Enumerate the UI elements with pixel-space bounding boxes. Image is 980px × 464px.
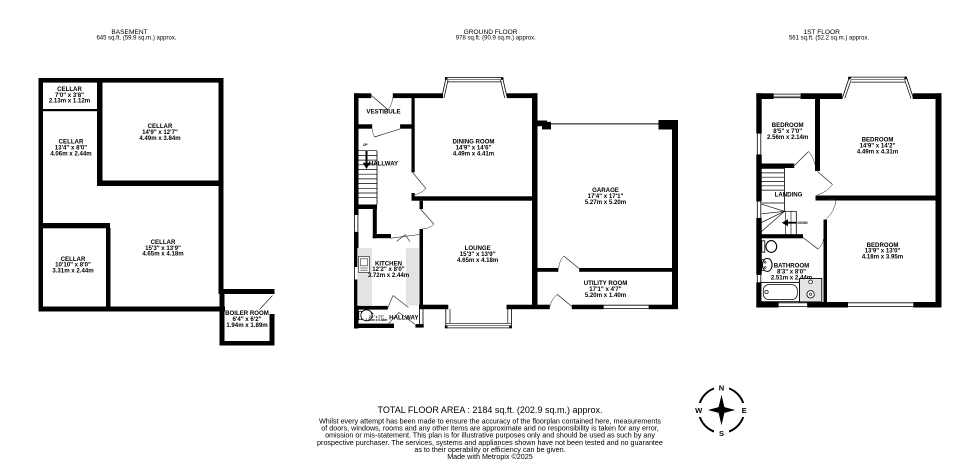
svg-text:VESTIBULE: VESTIBULE [366, 108, 400, 115]
svg-text:978 sq.ft. (90.9 sq.m.) approx: 978 sq.ft. (90.9 sq.m.) approx. [456, 36, 536, 42]
svg-text:HALLWAY: HALLWAY [389, 315, 418, 322]
svg-text:S: S [719, 429, 724, 438]
svg-text:4.65m x 4.18m: 4.65m x 4.18m [457, 257, 499, 264]
svg-text:E: E [742, 406, 747, 415]
svg-text:561 sq.ft. (52.2 sq.m.) approx: 561 sq.ft. (52.2 sq.m.) approx. [789, 36, 869, 42]
svg-text:4.65m x 4.18m: 4.65m x 4.18m [142, 251, 184, 258]
svg-text:HALLWAY: HALLWAY [369, 161, 398, 168]
svg-text:2.56m x 2.14m: 2.56m x 2.14m [767, 134, 809, 141]
svg-text:Made with Metropix ©2025: Made with Metropix ©2025 [447, 452, 533, 461]
svg-text:4.49m x 4.31m: 4.49m x 4.31m [857, 149, 899, 156]
svg-text:3.72m x 2.44m: 3.72m x 2.44m [368, 272, 410, 279]
svg-text:5.27m x 5.20m: 5.27m x 5.20m [585, 199, 627, 206]
svg-text:4.18m x 3.95m: 4.18m x 3.95m [862, 254, 904, 261]
svg-text:2.13m x 1.12m: 2.13m x 1.12m [49, 98, 91, 105]
svg-text:W: W [695, 406, 703, 415]
svg-text:LANDING: LANDING [775, 191, 803, 198]
svg-text:5.20m x 1.40m: 5.20m x 1.40m [585, 292, 627, 299]
svg-text:TOTAL FLOOR AREA : 2184 sq.ft.: TOTAL FLOOR AREA : 2184 sq.ft. (202.9 sq… [378, 405, 603, 415]
svg-text:1.94m x 0.88m: 1.94m x 0.88m [366, 318, 388, 322]
svg-text:4.49m x 3.84m: 4.49m x 3.84m [139, 135, 181, 142]
svg-text:645 sq.ft. (59.9 sq.m.) approx: 645 sq.ft. (59.9 sq.m.) approx. [96, 36, 176, 42]
svg-text:N: N [719, 384, 724, 393]
svg-text:4.06m x 2.44m: 4.06m x 2.44m [50, 151, 92, 158]
svg-text:DOWN: DOWN [797, 221, 808, 225]
svg-text:1.94m x 1.89m: 1.94m x 1.89m [226, 322, 268, 329]
svg-text:4.49m x 4.41m: 4.49m x 4.41m [453, 150, 495, 157]
svg-text:3.31m x 2.44m: 3.31m x 2.44m [52, 268, 94, 275]
